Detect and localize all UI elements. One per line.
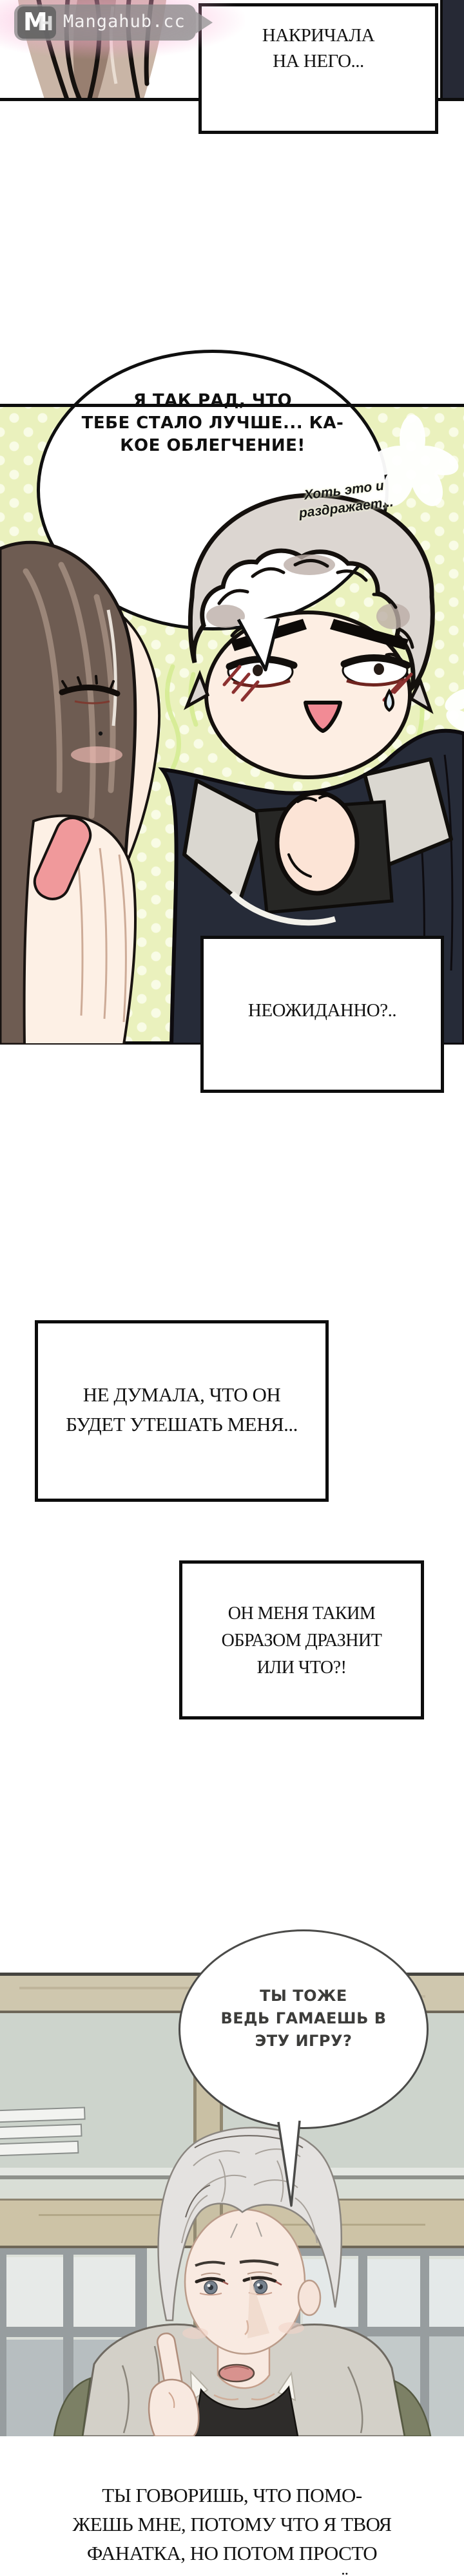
speech-line: КОЕ ОБЛЕГЧЕНИЕ! [40,435,385,457]
caption-line: ИЛИ ЧТО?! [182,1654,421,1681]
caption-line: ФАНАТКА, НО ПОТОМ ПРОСТО [0,2539,464,2568]
manhwa-page: НАКРИЧАЛА НА НЕГО... M H Mangahub.cc Я Т… [0,0,464,2576]
speech-bubble-game: ТЫ ТОЖЕ ВЕДЬ ГАМАЕШЬ В ЭТУ ИГРУ? [179,1929,429,2129]
speech-line: ЭТУ ИГРУ? [180,2030,427,2052]
dark-jacket-sliver [440,0,464,101]
caption-line: НЕОЖИДАННО?.. [204,1000,441,1021]
caption-line: ТЫ ГОВОРИШЬ, ЧТО ПОМО- [0,2481,464,2510]
caption-line: РЕШАЕШЬ ПОЗВОЛЯТЬ ЕЁ? [0,2568,464,2576]
caption-text: ТЫ ГОВОРИШЬ, ЧТО ПОМО- ЖЕШЬ МНЕ, ПОТОМУ … [0,2481,464,2576]
watermark-arrow-icon [196,12,213,33]
window-blinds [0,2108,86,2156]
watermark-site-text: Mangahub.cc [63,12,186,32]
speech-text: Я ТАК РАД, ЧТО ТЕБЕ СТАЛО ЛУЧШЕ... КА- К… [40,353,385,457]
caption-line: ЖЕШЬ МНЕ, ПОТОМУ ЧТО Я ТВОЯ [0,2510,464,2539]
caption-line: ОН МЕНЯ ТАКИМ [182,1600,421,1627]
watermark-logo-h: H [37,13,53,35]
speech-text: ТЫ ТОЖЕ ВЕДЬ ГАМАЕШЬ В ЭТУ ИГРУ? [180,1931,427,2052]
caption-line: НЕ ДУМАЛА, ЧТО ОН [38,1380,325,1410]
caption-text: ОН МЕНЯ ТАКИМ ОБРАЗОМ ДРАЗНИТ ИЛИ ЧТО?! [182,1564,421,1681]
narration-bottom: ТЫ ГОВОРИШЬ, ЧТО ПОМО- ЖЕШЬ МНЕ, ПОТОМУ … [0,2481,464,2576]
speech-line: Я ТАК РАД, ЧТО [40,390,385,412]
caption-box-thought: НЕ ДУМАЛА, ЧТО ОН БУДЕТ УТЕШАТЬ МЕНЯ... [35,1320,329,1502]
caption-line: БУДЕТ УТЕШАТЬ МЕНЯ... [38,1410,325,1439]
caption-text: НЕОЖИДАННО?.. [204,939,441,1021]
caption-box-teasing: ОН МЕНЯ ТАКИМ ОБРАЗОМ ДРАЗНИТ ИЛИ ЧТО?! [179,1560,424,1719]
speech-line: ВЕДЬ ГАМАЕШЬ В [180,2007,427,2030]
speech-line: ТЫ ТОЖЕ [180,1985,427,2007]
speech-line: ТЕБЕ СТАЛО ЛУЧШЕ... КА- [40,412,385,435]
caption-box-unexpected: НЕОЖИДАННО?.. [200,936,444,1093]
ear [298,2280,320,2315]
caption-text: НЕ ДУМАЛА, ЧТО ОН БУДЕТ УТЕШАТЬ МЕНЯ... [38,1323,325,1439]
watermark: M H Mangahub.cc [0,0,245,58]
caption-line: ОБРАЗОМ ДРАЗНИТ [182,1627,421,1654]
